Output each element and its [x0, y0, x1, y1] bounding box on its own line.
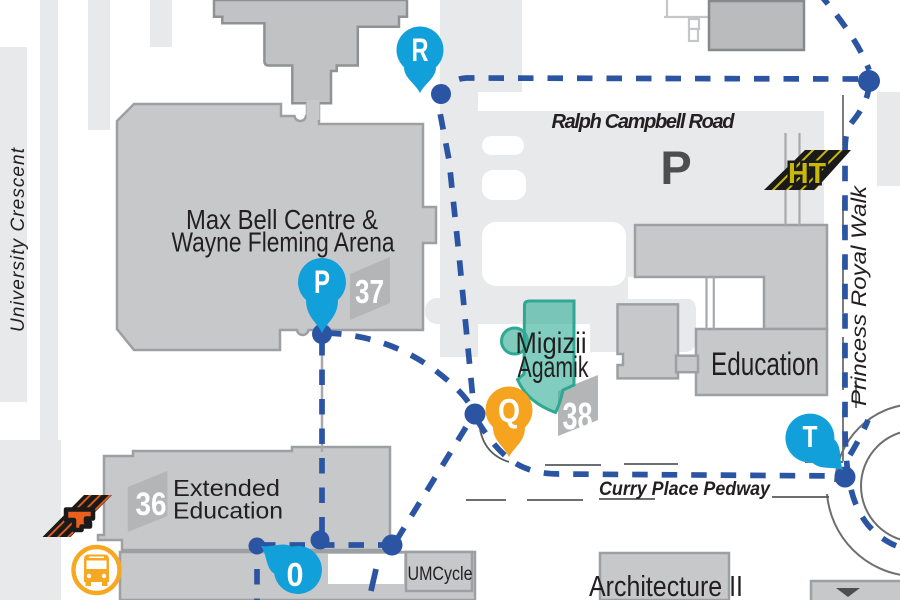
svg-text:UMCycle: UMCycle: [408, 564, 473, 585]
svg-text:36: 36: [136, 486, 167, 522]
svg-text:Education: Education: [173, 498, 283, 524]
svg-text:R: R: [412, 32, 429, 68]
svg-text:Education: Education: [711, 346, 819, 382]
svg-text:T: T: [803, 419, 818, 454]
svg-text:0: 0: [287, 556, 304, 593]
svg-text:University Crescent: University Crescent: [8, 147, 29, 332]
svg-text:37: 37: [355, 273, 384, 310]
svg-text:38: 38: [563, 396, 593, 438]
svg-text:Architecture II: Architecture II: [589, 571, 743, 600]
svg-text:Princess Royal Walk: Princess Royal Walk: [848, 184, 871, 406]
svg-text:Curry Place Pedway: Curry Place Pedway: [599, 479, 771, 500]
svg-text:Wayne Fleming Arena: Wayne Fleming Arena: [172, 227, 395, 258]
svg-text:Agamik: Agamik: [518, 351, 590, 384]
svg-text:Q: Q: [498, 392, 520, 429]
svg-text:P: P: [314, 264, 330, 300]
svg-text:P: P: [660, 141, 691, 194]
svg-text:Ralph Campbell Road: Ralph Campbell Road: [552, 111, 736, 133]
svg-text:HT: HT: [788, 158, 826, 190]
